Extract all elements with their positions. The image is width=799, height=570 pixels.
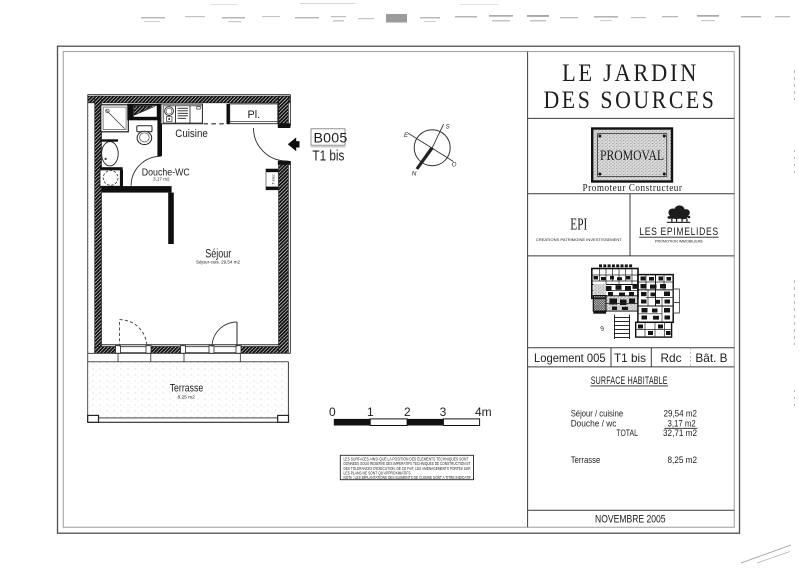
svg-text:PROMOTION IMMOBILIERE: PROMOTION IMMOBILIERE: [655, 239, 703, 244]
svg-text:O: O: [452, 163, 457, 169]
svg-text:T.élec: T.élec: [271, 174, 276, 184]
svg-text:4m: 4m: [475, 405, 492, 419]
svg-text:Rdc: Rdc: [661, 351, 682, 365]
svg-text:1: 1: [367, 405, 374, 419]
svg-text:Séjour-cuis. 29,54 m2: Séjour-cuis. 29,54 m2: [196, 260, 240, 266]
svg-text:8,25 m2: 8,25 m2: [178, 395, 196, 401]
svg-text:LE JARDIN: LE JARDIN: [562, 58, 699, 87]
svg-text:EPI: EPI: [570, 214, 587, 233]
svg-text:3: 3: [440, 405, 447, 419]
svg-text:0: 0: [329, 405, 336, 419]
svg-text:Logement 005: Logement 005: [534, 351, 606, 365]
svg-text:Pl.: Pl.: [248, 109, 261, 121]
svg-text:B005: B005: [314, 131, 348, 147]
svg-text:PROMOVAL: PROMOVAL: [600, 148, 664, 164]
svg-text:2: 2: [404, 405, 411, 419]
svg-text:T1 bis: T1 bis: [312, 149, 344, 165]
svg-text:Terrasse: Terrasse: [571, 455, 601, 466]
svg-text:N: N: [412, 171, 417, 178]
svg-text:Promoteur Constructeur: Promoteur Constructeur: [583, 183, 683, 194]
svg-text:S: S: [446, 124, 450, 130]
svg-text:T1 bis: T1 bis: [614, 351, 646, 365]
svg-text:DES SOURCES: DES SOURCES: [544, 85, 717, 114]
svg-text:32,71 m2: 32,71 m2: [663, 428, 697, 439]
svg-text:LES EPIMELIDES: LES EPIMELIDES: [639, 226, 719, 238]
svg-text:CREATIONS PATRIMOINE INVESTISS: CREATIONS PATRIMOINE INVESTISSEMENT: [536, 237, 623, 242]
svg-text:3,17 m2: 3,17 m2: [153, 177, 170, 182]
svg-text:Douche / wc: Douche / wc: [571, 419, 617, 430]
svg-text:TOTAL: TOTAL: [616, 428, 638, 439]
svg-text:Séjour: Séjour: [205, 247, 231, 261]
svg-text:Cuisine: Cuisine: [175, 128, 208, 140]
svg-text:NOTA : LES IMPLANTATIONS DES E: NOTA : LES IMPLANTATIONS DES ELEMENTS DE…: [344, 475, 472, 480]
svg-text:Terrasse: Terrasse: [170, 383, 204, 395]
svg-text:8,25 m2: 8,25 m2: [668, 455, 698, 466]
svg-text:SURFACE HABITABLE: SURFACE HABITABLE: [591, 375, 668, 387]
svg-text:Bât. B: Bât. B: [695, 351, 727, 365]
svg-text:NOVEMBRE 2005: NOVEMBRE 2005: [595, 514, 666, 526]
